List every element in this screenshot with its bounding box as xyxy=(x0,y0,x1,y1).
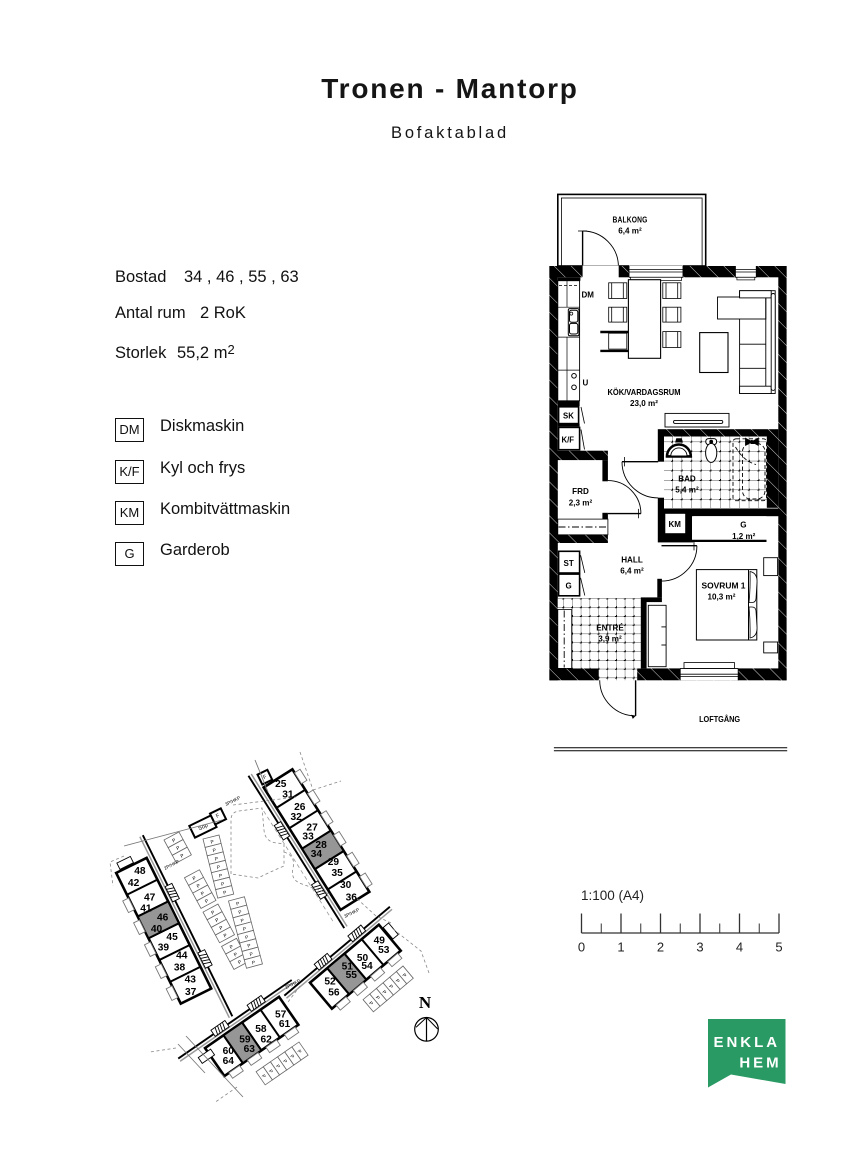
svg-text:52: 52 xyxy=(324,977,336,988)
svg-text:ST: ST xyxy=(564,559,574,568)
svg-text:U: U xyxy=(583,379,589,388)
svg-text:2,3 m²: 2,3 m² xyxy=(569,499,593,508)
svg-text:KM: KM xyxy=(669,520,682,529)
svg-text:43: 43 xyxy=(185,975,197,986)
svg-text:62: 62 xyxy=(261,1034,273,1045)
svg-text:35: 35 xyxy=(332,868,344,879)
svg-text:32: 32 xyxy=(291,812,303,823)
svg-text:47: 47 xyxy=(144,893,156,904)
svg-text:25: 25 xyxy=(275,779,287,790)
svg-text:N: N xyxy=(419,993,432,1012)
svg-text:0: 0 xyxy=(578,940,585,955)
svg-text:36: 36 xyxy=(346,893,358,904)
svg-text:2: 2 xyxy=(657,940,664,955)
svg-text:40: 40 xyxy=(151,924,163,935)
svg-text:56: 56 xyxy=(328,988,340,999)
svg-text:23,0 m²: 23,0 m² xyxy=(630,399,658,408)
svg-text:34: 34 xyxy=(311,849,323,860)
svg-text:44: 44 xyxy=(176,950,188,961)
svg-text:DM: DM xyxy=(582,291,595,300)
svg-text:5: 5 xyxy=(775,940,782,955)
svg-text:63: 63 xyxy=(244,1044,256,1055)
svg-text:FRD: FRD xyxy=(572,487,589,496)
svg-text:41: 41 xyxy=(140,904,152,915)
svg-text:3: 3 xyxy=(696,940,703,955)
svg-text:6,4 m²: 6,4 m² xyxy=(620,567,644,576)
svg-text:G: G xyxy=(740,521,746,530)
svg-text:2P/HKP: 2P/HKP xyxy=(163,859,180,871)
svg-text:10,3 m²: 10,3 m² xyxy=(708,593,736,602)
svg-text:61: 61 xyxy=(279,1019,291,1030)
svg-text:31: 31 xyxy=(282,790,294,801)
svg-text:KÖK/VARDAGSRUM: KÖK/VARDAGSRUM xyxy=(608,388,681,397)
svg-text:33: 33 xyxy=(302,832,314,843)
svg-text:HEM: HEM xyxy=(739,1055,781,1072)
svg-text:3P/HKP: 3P/HKP xyxy=(224,795,241,807)
svg-text:6,4 m²: 6,4 m² xyxy=(618,227,642,236)
svg-text:1:100 (A4): 1:100 (A4) xyxy=(581,888,644,903)
svg-text:SOVRUM 1: SOVRUM 1 xyxy=(702,582,747,591)
svg-text:46: 46 xyxy=(157,913,169,924)
svg-text:ENKLA: ENKLA xyxy=(713,1034,780,1051)
svg-text:BALKONG: BALKONG xyxy=(613,216,648,225)
svg-text:LOFTGÅNG: LOFTGÅNG xyxy=(699,714,740,724)
svg-text:37: 37 xyxy=(185,987,197,998)
svg-text:3P/HKP: 3P/HKP xyxy=(343,907,360,919)
svg-text:39: 39 xyxy=(158,942,170,953)
svg-text:1: 1 xyxy=(617,940,624,955)
svg-text:55: 55 xyxy=(346,970,358,981)
svg-text:3,9 m²: 3,9 m² xyxy=(598,635,622,644)
svg-text:54: 54 xyxy=(361,961,373,972)
svg-text:4: 4 xyxy=(736,940,743,955)
svg-text:53: 53 xyxy=(378,945,390,956)
svg-text:30: 30 xyxy=(340,880,352,891)
svg-text:42: 42 xyxy=(128,878,140,889)
svg-text:ENTRÉ: ENTRÉ xyxy=(596,624,624,633)
svg-text:1,2 m²: 1,2 m² xyxy=(732,532,755,541)
svg-text:38: 38 xyxy=(174,963,186,974)
svg-text:64: 64 xyxy=(223,1056,235,1067)
svg-text:SK: SK xyxy=(563,412,574,421)
svg-text:BAD: BAD xyxy=(678,475,696,484)
svg-text:HALL: HALL xyxy=(621,556,643,565)
svg-text:K/F: K/F xyxy=(562,436,575,445)
svg-text:48: 48 xyxy=(134,866,146,877)
svg-text:29: 29 xyxy=(328,857,340,868)
svg-text:5,4 m²: 5,4 m² xyxy=(675,486,699,495)
svg-text:G: G xyxy=(566,582,572,591)
